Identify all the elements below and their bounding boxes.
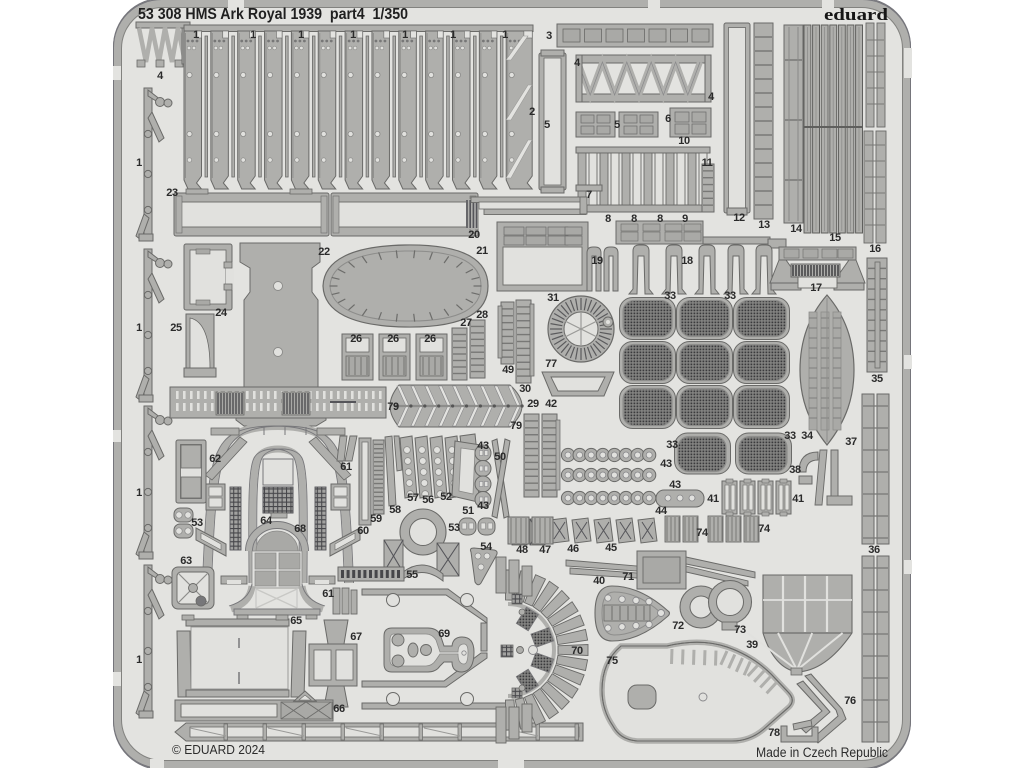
svg-text:28: 28 <box>476 309 488 321</box>
svg-text:31: 31 <box>547 292 559 304</box>
svg-text:3: 3 <box>546 30 552 42</box>
svg-text:8: 8 <box>631 213 637 225</box>
svg-text:1: 1 <box>136 654 142 666</box>
svg-text:43: 43 <box>477 500 489 512</box>
svg-text:46: 46 <box>567 543 579 555</box>
svg-text:53: 53 <box>191 517 203 529</box>
svg-text:25: 25 <box>170 322 182 334</box>
svg-text:36: 36 <box>868 544 880 556</box>
svg-text:8: 8 <box>657 213 663 225</box>
svg-text:38: 38 <box>789 464 801 476</box>
svg-text:68: 68 <box>294 523 306 535</box>
svg-text:39: 39 <box>746 639 758 651</box>
svg-text:43: 43 <box>660 458 672 470</box>
svg-text:13: 13 <box>758 219 770 231</box>
svg-text:71: 71 <box>622 571 634 583</box>
svg-text:1: 1 <box>350 29 356 41</box>
svg-text:66: 66 <box>333 703 345 715</box>
svg-text:72: 72 <box>672 620 684 632</box>
svg-text:53: 53 <box>448 522 460 534</box>
svg-text:15: 15 <box>829 232 841 244</box>
svg-text:22: 22 <box>318 246 330 258</box>
svg-text:1: 1 <box>250 29 256 41</box>
svg-text:11: 11 <box>702 157 713 169</box>
svg-text:1: 1 <box>402 29 408 41</box>
svg-text:20: 20 <box>468 229 480 241</box>
svg-text:74: 74 <box>758 523 771 535</box>
svg-text:41: 41 <box>707 493 719 505</box>
svg-text:78: 78 <box>768 727 780 739</box>
svg-text:26: 26 <box>350 333 362 345</box>
svg-text:48: 48 <box>516 544 528 556</box>
svg-text:62: 62 <box>209 453 221 465</box>
svg-text:75: 75 <box>606 655 618 667</box>
svg-text:61: 61 <box>322 588 334 600</box>
svg-text:44: 44 <box>655 505 668 517</box>
svg-text:74: 74 <box>696 527 709 539</box>
svg-text:33: 33 <box>724 290 736 302</box>
svg-text:42: 42 <box>545 398 557 410</box>
svg-text:33: 33 <box>664 290 676 302</box>
svg-text:1: 1 <box>298 29 304 41</box>
svg-text:51: 51 <box>462 505 474 517</box>
svg-text:54: 54 <box>480 541 493 553</box>
svg-text:© EDUARD 2024: © EDUARD 2024 <box>172 742 265 757</box>
svg-text:1: 1 <box>502 29 508 41</box>
svg-text:5: 5 <box>614 119 620 131</box>
svg-text:2: 2 <box>529 106 535 118</box>
svg-text:8: 8 <box>605 213 611 225</box>
svg-text:Made in Czech Republic: Made in Czech Republic <box>756 745 888 760</box>
svg-text:23: 23 <box>166 187 178 199</box>
svg-text:1: 1 <box>193 29 199 41</box>
svg-text:67: 67 <box>350 631 362 643</box>
svg-text:79: 79 <box>387 401 399 413</box>
svg-text:73: 73 <box>734 624 746 636</box>
svg-text:24: 24 <box>215 307 228 319</box>
svg-text:1: 1 <box>136 157 142 169</box>
svg-text:69: 69 <box>438 628 450 640</box>
svg-text:53 308 HMS Ark Royal 1939 par: 53 308 HMS Ark Royal 1939 part4 1/350 <box>138 6 408 23</box>
svg-text:60: 60 <box>357 525 369 537</box>
svg-text:33: 33 <box>784 430 796 442</box>
svg-text:26: 26 <box>424 333 436 345</box>
svg-text:1: 1 <box>136 487 142 499</box>
svg-text:43: 43 <box>669 479 681 491</box>
svg-text:14: 14 <box>790 223 803 235</box>
svg-text:57: 57 <box>407 492 419 504</box>
svg-text:63: 63 <box>180 555 192 567</box>
svg-text:49: 49 <box>502 364 514 376</box>
svg-text:10: 10 <box>678 135 690 147</box>
svg-text:6: 6 <box>665 113 671 125</box>
svg-text:43: 43 <box>477 440 489 452</box>
svg-text:37: 37 <box>845 436 857 448</box>
svg-text:19: 19 <box>591 255 603 267</box>
svg-text:9: 9 <box>682 213 688 225</box>
svg-text:29: 29 <box>527 398 539 410</box>
svg-text:21: 21 <box>476 245 488 257</box>
svg-text:64: 64 <box>260 515 273 527</box>
svg-text:26: 26 <box>387 333 399 345</box>
svg-text:5: 5 <box>544 119 550 131</box>
svg-text:17: 17 <box>810 282 822 294</box>
svg-text:7: 7 <box>586 189 592 201</box>
svg-text:65: 65 <box>290 615 302 627</box>
svg-text:45: 45 <box>605 542 617 554</box>
svg-text:18: 18 <box>681 255 693 267</box>
svg-text:30: 30 <box>519 383 531 395</box>
svg-text:61: 61 <box>340 461 352 473</box>
svg-text:56: 56 <box>422 494 434 506</box>
svg-text:76: 76 <box>844 695 856 707</box>
svg-text:33: 33 <box>666 439 678 451</box>
svg-text:52: 52 <box>440 491 452 503</box>
svg-text:55: 55 <box>406 569 418 581</box>
svg-text:35: 35 <box>871 373 883 385</box>
svg-text:77: 77 <box>545 358 557 370</box>
svg-text:27: 27 <box>460 317 472 329</box>
svg-text:41: 41 <box>792 493 804 505</box>
svg-text:40: 40 <box>593 575 605 587</box>
svg-text:70: 70 <box>571 645 583 657</box>
svg-text:12: 12 <box>733 212 745 224</box>
svg-text:47: 47 <box>539 544 551 556</box>
svg-text:79: 79 <box>510 420 522 432</box>
svg-text:1: 1 <box>450 29 456 41</box>
svg-text:eduard: eduard <box>824 5 889 24</box>
svg-text:34: 34 <box>801 430 814 442</box>
svg-text:50: 50 <box>494 451 506 463</box>
svg-text:58: 58 <box>389 504 401 516</box>
svg-text:59: 59 <box>370 513 382 525</box>
svg-text:1: 1 <box>136 322 142 334</box>
svg-text:16: 16 <box>869 243 881 255</box>
